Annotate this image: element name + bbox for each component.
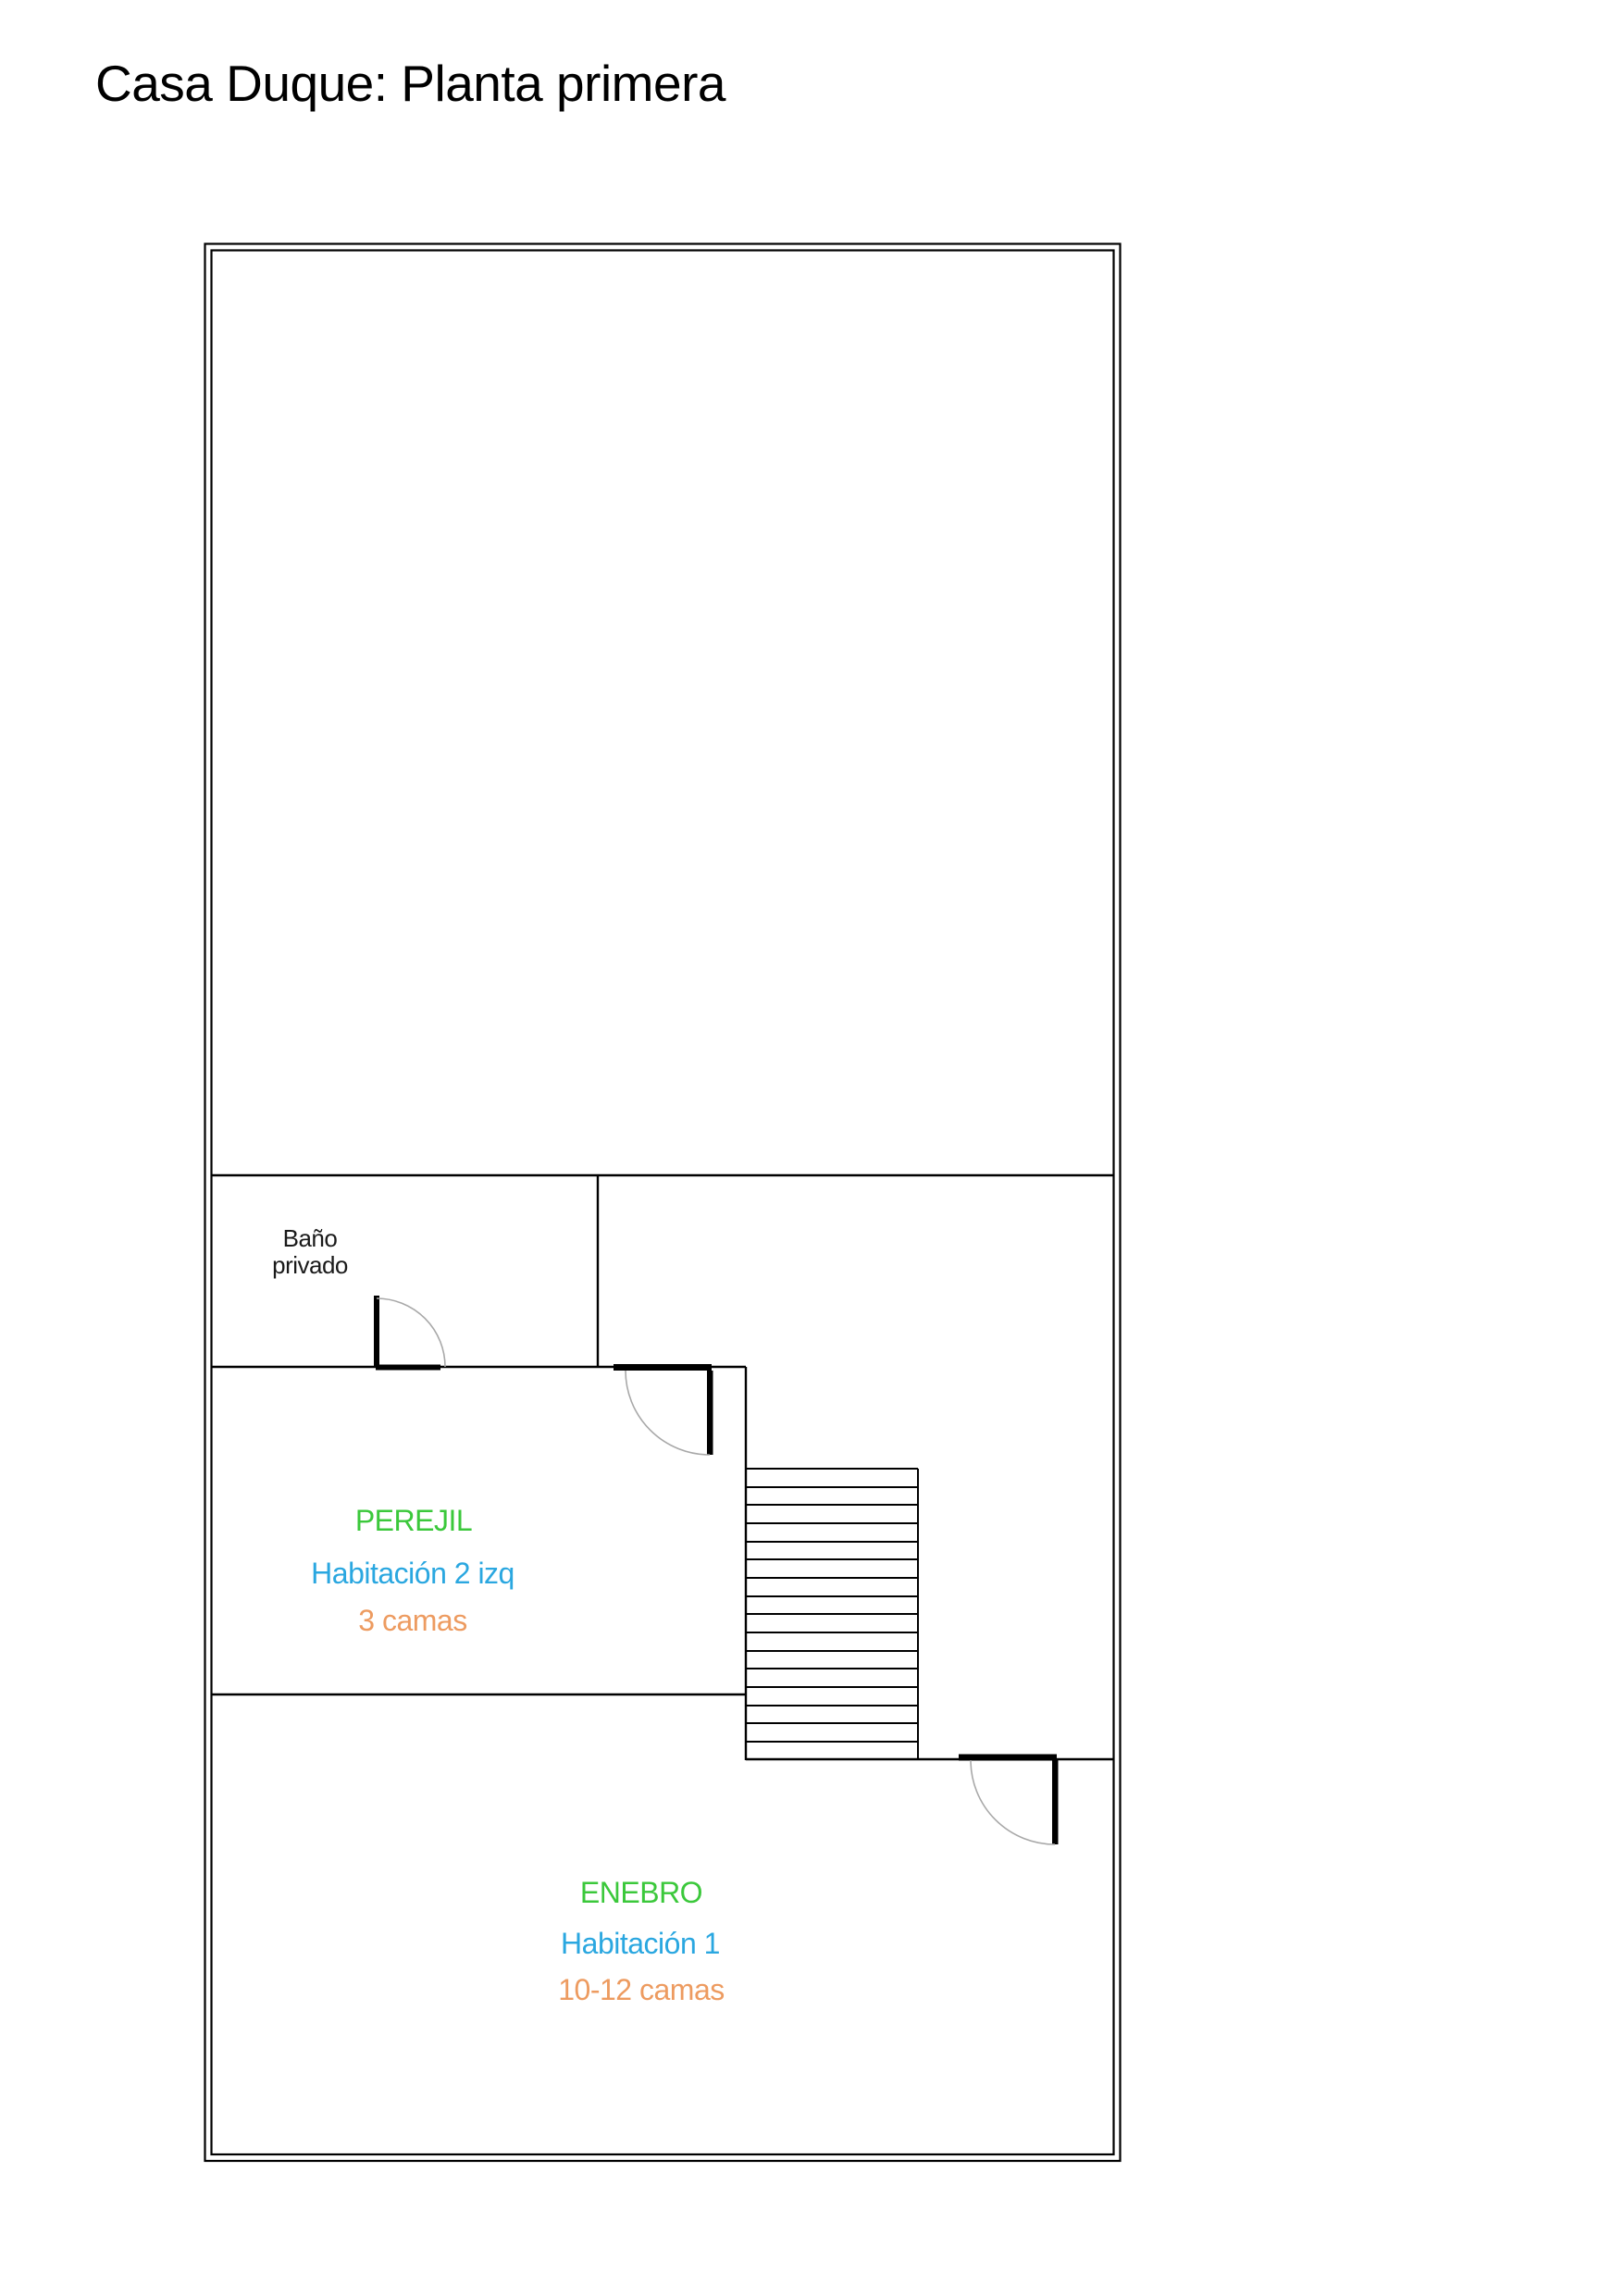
room-labels: Baño privado PEREJIL Habitación 2 izq 3 … xyxy=(272,1224,725,2006)
enebro-door xyxy=(959,1755,1059,1845)
perejil-door-leaf xyxy=(707,1371,713,1455)
staircase xyxy=(746,1469,918,1759)
bathroom-door-leaf xyxy=(374,1296,379,1368)
enebro-room-number: Habitación 1 xyxy=(561,1927,720,1960)
enebro-door-swing-arc xyxy=(971,1760,1055,1844)
bathroom-door xyxy=(374,1296,445,1371)
perejil-door-swing-arc xyxy=(626,1371,710,1455)
outer-walls xyxy=(205,244,1121,2162)
enebro-door-threshold xyxy=(959,1755,1057,1761)
bathroom-door-swing-arc xyxy=(377,1298,445,1367)
floor-plan: Baño privado PEREJIL Habitación 2 izq 3 … xyxy=(0,0,1624,2296)
perejil-room-beds: 3 camas xyxy=(358,1604,466,1637)
enebro-room-name: ENEBRO xyxy=(580,1876,702,1909)
perejil-door-threshold xyxy=(614,1364,712,1371)
outer-wall-outer-line xyxy=(205,244,1121,2162)
perejil-room-number: Habitación 2 izq xyxy=(311,1557,514,1590)
document-page: Casa Duque: Planta primera xyxy=(0,0,1624,2296)
enebro-door-leaf xyxy=(1052,1760,1059,1844)
bathroom-door-threshold xyxy=(376,1365,440,1371)
bathroom-label-line2: privado xyxy=(272,1251,348,1279)
perejil-room-name: PEREJIL xyxy=(355,1504,472,1537)
enebro-room-beds: 10-12 camas xyxy=(558,1973,724,2006)
bathroom-label-line1: Baño xyxy=(283,1224,338,1252)
perejil-door xyxy=(614,1364,713,1455)
outer-wall-inner-line xyxy=(212,251,1114,2155)
